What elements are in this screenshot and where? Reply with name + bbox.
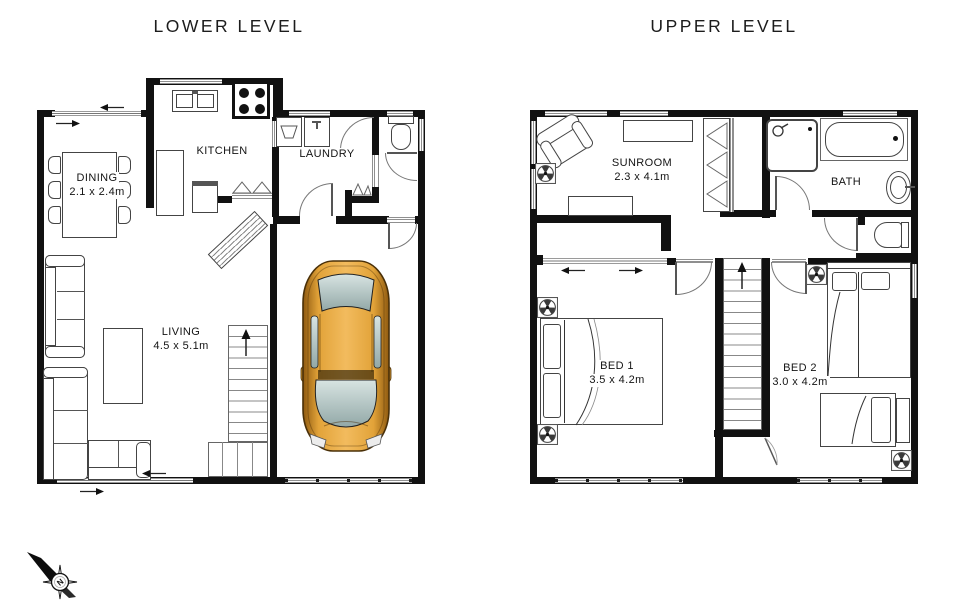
bed-line [858,272,859,377]
room-dims: 3.0 x 4.2m [770,376,829,390]
upper-level-plan: SUNROOM 2.3 x 4.1m BATH BED 1 3.5 x 4.2m… [0,0,960,600]
bath-label: BATH [796,176,896,190]
pillow-icon [543,324,561,369]
wall-segment [762,258,770,432]
wall-segment [530,215,671,223]
window [797,478,882,483]
toilet-icon [874,222,902,248]
floorplan-canvas: LOWER LEVEL UPPER LEVEL [0,0,960,600]
stair-up-arrow [735,261,749,291]
window [843,111,897,116]
wall-segment [714,430,770,437]
compass-icon: N [24,550,90,604]
door-leaf [856,218,858,251]
door-leaf [675,262,677,295]
pillow-icon [871,397,891,443]
window [620,111,668,116]
wardrobe-track [730,118,734,212]
toilet-cistern [901,222,909,248]
window [555,478,683,483]
window [912,264,917,298]
room-name: BED 2 [781,362,819,376]
arrow-left-icon [560,266,586,275]
pillow-icon [543,373,561,418]
door-leaf [775,176,777,210]
basin-tap-icon [905,186,915,188]
room-dims: 3.5 x 4.2m [587,374,646,388]
room-name: BATH [829,176,863,190]
door-swing-arc [676,262,712,295]
bed1-sliding-door [543,258,667,264]
bed-headboard [827,262,911,269]
arrow-right-icon [618,266,644,275]
pillow-icon [861,272,890,290]
bathtub-icon [825,122,904,157]
window [531,121,536,164]
room-name: SUNROOM [610,157,674,171]
drain-icon [893,136,898,141]
closet-door-icon [762,437,780,469]
bed2-label: BED 2 3.0 x 4.2m [750,362,850,389]
room-name: BED 1 [598,360,636,374]
wall-segment [661,215,671,251]
wall-segment [715,258,723,477]
wardrobe-hanging-icon [705,121,729,209]
ceiling-fan-icon [891,450,912,471]
ceiling-fan-icon [537,424,558,445]
shower-head-icon [770,123,814,141]
bed-headboard [896,398,910,443]
ceiling-fan-icon [535,163,556,184]
room-dims: 2.3 x 4.1m [612,171,671,185]
sunroom-label: SUNROOM 2.3 x 4.1m [592,157,692,184]
wall-segment [858,217,865,225]
ceiling-fan-icon [537,297,558,318]
wall-segment [812,210,911,217]
blanket-fold-icon [850,394,870,446]
pillow-icon [832,272,857,291]
table-icon [568,196,633,216]
door-swing-arc [824,218,858,251]
ceiling-fan-icon [806,264,827,285]
door-swing-arc [771,262,807,294]
table-icon [623,120,693,142]
bed1-label: BED 1 3.5 x 4.2m [567,360,667,387]
